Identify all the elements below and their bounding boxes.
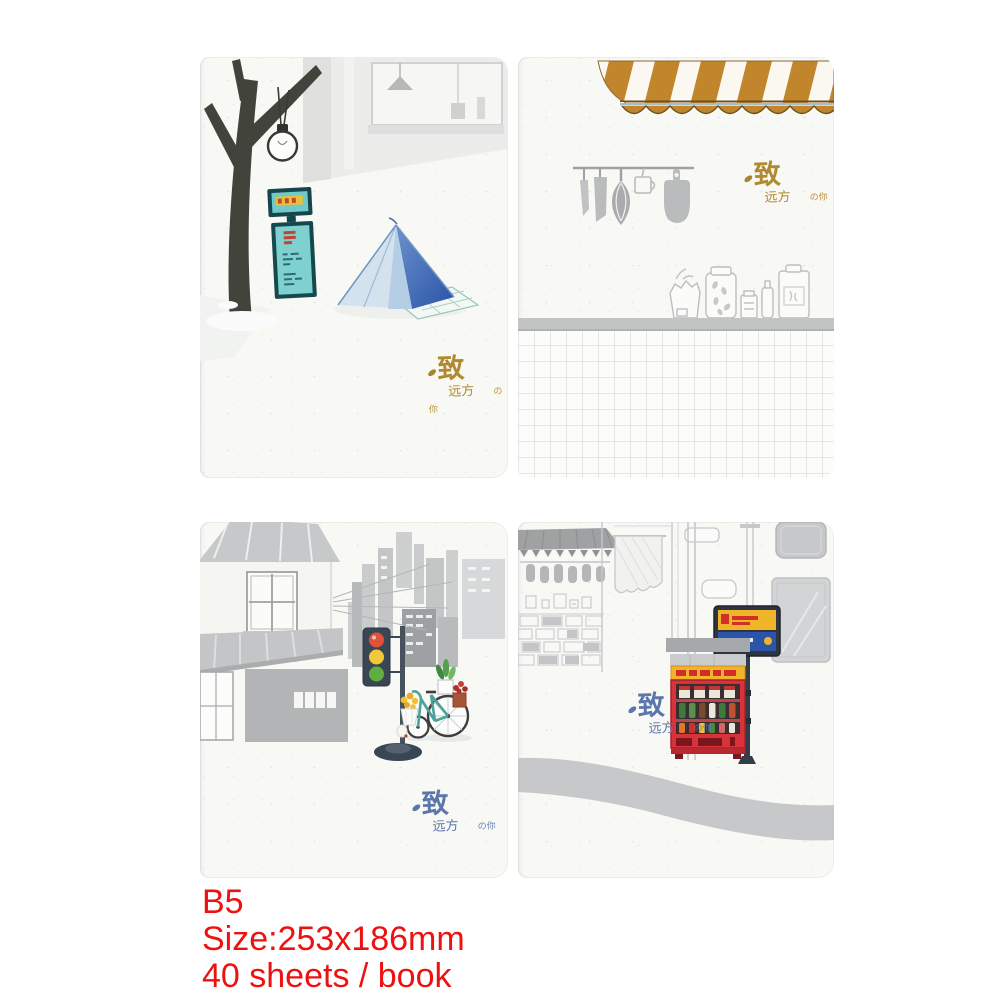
tiled-wall [518, 331, 834, 478]
leaf-icon [427, 368, 437, 377]
shelf-bar [518, 318, 834, 331]
paper-bag [670, 269, 700, 318]
notebook-cover-vending-street: 致 远方 の你 [518, 522, 834, 878]
brand-logo-blue: 致 远方 の你 [411, 789, 496, 835]
notebook-cover-winter: 致 远方 の你 [200, 57, 508, 478]
knife-icon [580, 168, 589, 216]
leaf-icon [743, 174, 753, 183]
window [247, 572, 297, 633]
mug-icon [635, 168, 655, 193]
curtain [615, 536, 662, 593]
big-jar [706, 267, 736, 318]
flower-pot [453, 681, 468, 707]
product-caption: B5 Size:253x186mm 40 sheets / book [202, 884, 465, 995]
tent [334, 218, 478, 319]
yellow-flowers [401, 693, 419, 725]
logo-small-text: の你 [693, 724, 711, 735]
logo-main-character: 致 [437, 355, 465, 383]
notebook-cover-kitchen: 致 远方 の你 [518, 57, 834, 478]
logo-sub-text: 远方 [648, 721, 675, 737]
logo-main-character: 致 [753, 161, 781, 189]
striped-awning [598, 61, 834, 114]
street-sign-board [267, 187, 317, 299]
product-image: 致 远方 の你 [0, 0, 1002, 1002]
notebook-cover-street-corner: 致 远方 の你 [200, 522, 508, 878]
storefront-background [303, 57, 508, 183]
logo-small-text: の你 [477, 822, 495, 833]
cleaver-icon [594, 168, 607, 222]
dimensions-text: Size:253x186mm [202, 921, 465, 958]
logo-sub-text: 远方 [448, 384, 475, 400]
sheet-count-text: 40 sheets / book [202, 958, 465, 995]
small-jar [741, 291, 757, 318]
leaf-icon [411, 803, 421, 812]
brand-logo-gold: 致 远方 の你 [427, 354, 508, 416]
hanging-utensils [573, 168, 694, 225]
house [200, 522, 348, 742]
slim-bottle [762, 281, 773, 318]
logo-small-text: の你 [809, 193, 827, 204]
flower-bicycle [397, 659, 472, 742]
whisk-icon [612, 168, 630, 225]
leaf-icon [627, 705, 637, 714]
logo-main-character: 致 [421, 790, 449, 818]
brand-logo-gold: 致 远方 の你 [743, 160, 828, 206]
size-class-text: B5 [202, 884, 465, 921]
logo-sub-text: 远方 [432, 819, 459, 835]
jars-on-shelf [670, 265, 809, 318]
brand-logo-blue: 致 远方 の你 [627, 691, 712, 737]
kitchen-scene [518, 57, 834, 478]
road [518, 758, 834, 841]
canister [779, 265, 809, 318]
cutting-board-icon [664, 169, 690, 223]
logo-main-character: 致 [637, 692, 665, 720]
winter-scene [200, 57, 508, 478]
logo-sub-text: 远方 [764, 190, 791, 206]
